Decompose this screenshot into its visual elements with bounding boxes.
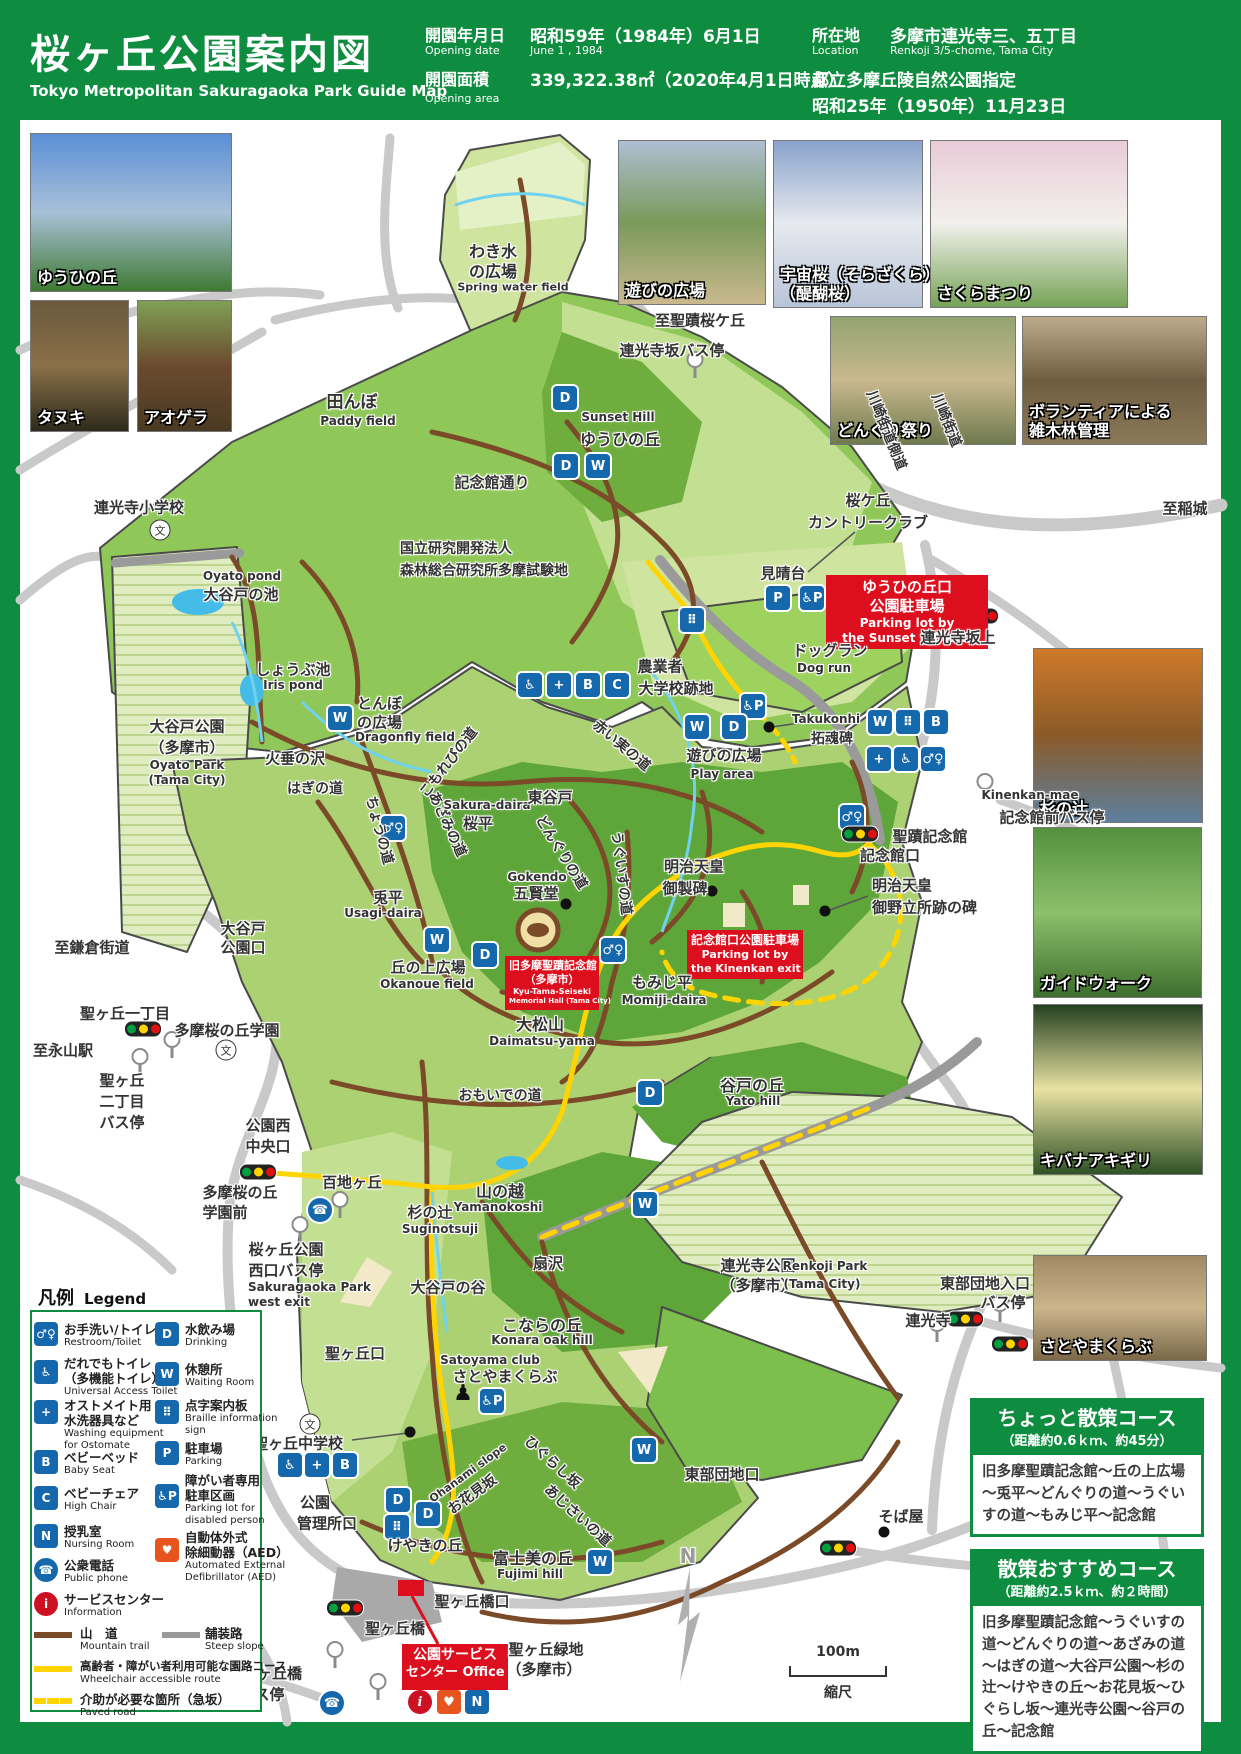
legend-title-en: Legend [84,1290,146,1308]
recommended-course-title: 散策おすすめコース [975,1557,1199,1581]
legend-title: 凡例Legend [38,1284,146,1310]
short-walk-course-subtitle: （距離約0.6ｋｍ、約45分） [975,1430,1199,1449]
short-walk-course-header: ちょっと散策コース （距離約0.6ｋｍ、約45分） [973,1401,1201,1455]
short-walk-course-route: 旧多摩聖蹟記念館～丘の上広場～兎平～どんぐりの道～うぐいすの道～もみじ平～記念館 [973,1455,1201,1534]
recommended-course-route: 旧多摩聖蹟記念館～うぐいすの道～どんぐりの道～あざみの道～はぎの道～大谷戸公園～… [973,1606,1201,1751]
short-walk-course-title: ちょっと散策コース [975,1406,1199,1430]
service-center-marker [398,1580,424,1596]
legend-title-jp: 凡例 [38,1288,74,1309]
gokendo-building [518,910,558,950]
recommended-course-panel: 散策おすすめコース （距離約2.5ｋｍ、約２時間） 旧多摩聖蹟記念館～うぐいすの… [970,1549,1204,1754]
park-guide-map-page: 桜ヶ丘公園案内図 Tokyo Metropolitan Sakuragaoka … [0,0,1241,1754]
recommended-course-subtitle: （距離約2.5ｋｍ、約２時間） [975,1581,1199,1600]
short-walk-course-panel: ちょっと散策コース （距離約0.6ｋｍ、約45分） 旧多摩聖蹟記念館～丘の上広場… [970,1398,1204,1537]
recommended-course-header: 散策おすすめコース （距離約2.5ｋｍ、約２時間） [973,1552,1201,1606]
legend-panel [30,1310,262,1712]
